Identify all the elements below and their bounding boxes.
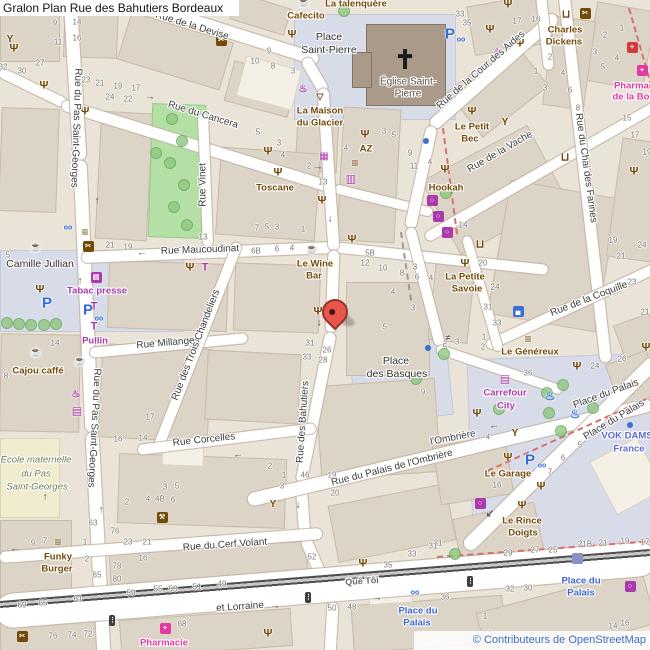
oneway-arrow-icon: ↓ [317, 318, 322, 329]
house-number: 15 [623, 114, 632, 123]
house-number: 24 [638, 241, 647, 250]
house-number: 27 [531, 546, 540, 555]
house-number: 9 [53, 19, 57, 28]
house-number: 1 [301, 225, 305, 234]
restaurant-icon: Ψ [537, 482, 546, 493]
fountain-icon: ♨ [545, 390, 556, 402]
purple-label: Pullin [82, 336, 108, 347]
tblue-label: Palais [567, 588, 594, 599]
brown-label: Le Petit [455, 122, 489, 133]
brown-label: Charles [548, 25, 583, 36]
restaurant-icon: Ψ [186, 263, 195, 274]
restaurant-icon: Ψ [288, 30, 297, 41]
house-number: 21 [617, 252, 626, 261]
house-number: 19 [621, 537, 630, 546]
house-number: 17 [146, 413, 155, 422]
tree-icon [543, 407, 555, 419]
house-number: 6B [251, 247, 261, 256]
cafe-icon: ☕ [74, 357, 86, 367]
house-number: 32 [506, 585, 515, 594]
house-number: 1 [620, 24, 624, 33]
parking-icon: P [83, 303, 93, 318]
house-number: 50 [328, 604, 337, 613]
purple-label: Tabac presse [67, 286, 127, 297]
restaurant-icon: Ψ [642, 343, 650, 354]
house-number: 5 [383, 323, 387, 332]
map-title: Gralon Plan Rue des Bahutiers Bordeaux [0, 0, 239, 16]
house-number: 4 [344, 144, 348, 153]
restaurant-icon: Ψ [468, 107, 477, 118]
house-number: 33 [456, 10, 465, 19]
house-number: 65 [93, 571, 102, 580]
building-block [204, 350, 302, 425]
pink-label: de la Bourse [612, 92, 650, 103]
school-label: Saint-Georges [6, 482, 67, 493]
map-viewport[interactable]: Rue de la DeviseRue du CanceraRue VinetR… [0, 0, 650, 650]
street-name: Rue Vinet [198, 163, 209, 207]
church-label: Église Saint- [380, 77, 436, 88]
restaurant-icon: Ψ [264, 629, 273, 640]
house-number: 2 [603, 31, 607, 40]
restaurant-icon: Ψ [486, 25, 495, 36]
house-number: 8 [271, 62, 275, 71]
oneway-arrow-icon: ↓ [328, 214, 333, 225]
laundry-icon: ○ [475, 498, 486, 509]
house-number: 35 [384, 561, 393, 570]
house-number: 46 [301, 471, 310, 480]
house-number: 74 [68, 631, 77, 640]
house-number: 2 [85, 555, 89, 564]
dot-icon [423, 138, 429, 144]
bar-icon: Y [7, 35, 14, 45]
restaurant-icon: Ψ [473, 409, 482, 420]
purple-label: City [497, 401, 515, 412]
house-number: 11 [54, 38, 62, 47]
house-number: 22 [124, 95, 133, 104]
house-number: 2 [307, 162, 311, 171]
house-number: 2 [268, 462, 272, 471]
brown-label: Bar [306, 271, 322, 282]
house-number: 1 [83, 538, 87, 547]
restaurant-icon: Ψ [441, 165, 450, 176]
pink-label: Pharmacie [614, 81, 650, 92]
brown-label: Funky [44, 552, 72, 563]
house-number: 35 [463, 19, 472, 28]
house-number: 12 [361, 259, 370, 268]
brown-label: Bec [461, 134, 478, 145]
restaurant-icon: Ψ [504, 0, 513, 11]
oneway-arrow-icon: → [313, 162, 323, 173]
house-number: 24 [591, 362, 600, 371]
brown-label: La Maison [297, 106, 343, 117]
blue-label: France [613, 444, 644, 455]
brown-label: Burger [41, 564, 72, 575]
book-icon: ▥ [346, 175, 356, 186]
house-number: 3 [291, 67, 295, 76]
school-label: du Pas [21, 469, 51, 480]
house-number: 36 [441, 593, 450, 602]
tblue-label: Palais [403, 618, 430, 629]
house-number: 21 [106, 241, 115, 250]
school-label: École maternelle [1, 455, 72, 466]
brown-label: Le Garage [485, 469, 531, 480]
house-number: 10 [251, 57, 260, 66]
beer-icon: ⊔ [561, 153, 570, 164]
burger-icon: ≡ [524, 333, 531, 345]
house-number: 16 [532, 15, 541, 24]
oneway-arrow-icon: → [372, 593, 382, 604]
restaurant-icon: Ψ [10, 44, 19, 55]
burger-icon: ≡ [81, 226, 88, 238]
oneway-arrow-icon: → [145, 92, 155, 103]
house-number: 6 [275, 245, 279, 254]
map-canvas: Rue de la DeviseRue du CanceraRue VinetR… [0, 0, 650, 650]
tree-icon [176, 135, 188, 147]
house-number: 4 [428, 158, 432, 167]
house-number: 5 [578, 441, 582, 450]
oneway-arrow-icon: → [270, 601, 280, 612]
house-number: 19 [114, 82, 123, 91]
house-number: 1 [483, 612, 487, 621]
house-number: 5 [601, 63, 605, 72]
house-number: 3 [593, 48, 597, 57]
house-number: 16 [114, 435, 123, 444]
bike-icon: oo [538, 463, 547, 470]
house-number: 3 [411, 304, 415, 313]
tree-icon [1, 317, 13, 329]
house-number: 76 [111, 527, 120, 536]
house-number: 9 [31, 539, 35, 548]
house-number: 20 [479, 259, 488, 268]
tree-icon [168, 201, 180, 213]
house-number: 13 [319, 178, 328, 187]
restaurant-icon: Ψ [40, 81, 49, 92]
parking-icon: P [445, 27, 455, 42]
tshirt-icon: T [202, 263, 209, 274]
house-number: 4 [486, 433, 490, 442]
tblue-label: Place du [561, 576, 600, 587]
tree-icon [449, 548, 461, 560]
house-number: 1 [482, 333, 486, 342]
light-icon: ⋮ [305, 592, 311, 603]
house-number: 4B [155, 495, 165, 504]
cafe-icon: ☕ [30, 348, 42, 358]
house-number: 21 [143, 538, 152, 547]
house-number: 24 [491, 283, 500, 292]
house-number: 72 [84, 630, 93, 639]
house-number: 65 [39, 599, 48, 608]
restaurant-icon: Ψ [518, 501, 527, 512]
brown-label: Le Rince [502, 516, 542, 527]
house-number: 5 [265, 223, 269, 232]
marker-center-dot [328, 308, 336, 316]
oneway-arrow-icon: ← [489, 421, 499, 432]
house-number: 3 [280, 482, 284, 491]
laundry-icon: ○ [427, 195, 438, 206]
house-number: 19 [124, 243, 133, 252]
oneway-arrow-icon: ↓ [296, 500, 301, 511]
church-label: Pierre [395, 89, 422, 100]
attribution: © Contributeurs de OpenStreetMap [414, 631, 650, 650]
house-number: 16 [621, 619, 630, 628]
tabac-icon: ▤ [91, 272, 102, 283]
tree-icon [150, 147, 162, 159]
house-number: 17 [641, 538, 650, 547]
bakery-icon: ♨ [299, 85, 308, 95]
house-number: 2 [548, 53, 552, 62]
house-number: 8 [576, 104, 580, 113]
bar-icon: Y [512, 429, 519, 439]
bike-icon: oo [457, 37, 466, 44]
oneway-arrow-icon: ↑ [99, 505, 104, 516]
house-number: 23 [124, 538, 133, 547]
keyboard-icon: ▦ [319, 152, 328, 162]
oneway-arrow-icon: ← [10, 544, 20, 555]
house-number: 23 [628, 278, 637, 287]
tree-icon [13, 318, 25, 330]
house-number: 4 [281, 151, 285, 160]
place-label: Place [383, 355, 409, 367]
place-label: Place [316, 31, 342, 43]
house-number: 8 [4, 372, 8, 381]
house-number: 16 [493, 481, 502, 490]
house-number: 14 [73, 18, 82, 27]
house-number: 11 [410, 162, 418, 171]
cafe-icon: ☕ [306, 245, 318, 255]
tblue-label: Place du [398, 606, 437, 617]
house-number: 3 [382, 127, 386, 136]
parking-icon: P [525, 453, 535, 468]
house-number: 31 [484, 303, 493, 312]
restaurant-icon: Ψ [630, 167, 639, 178]
house-number: 1 [282, 471, 286, 480]
hairdresser-icon: ✂ [83, 241, 94, 252]
house-number: 10 [379, 264, 388, 273]
tram-icon [572, 553, 583, 564]
restaurant-icon: Ψ [348, 235, 357, 246]
bar-icon: Y [502, 118, 509, 128]
house-number: 4 [146, 495, 150, 504]
oneway-arrow-icon: ← [137, 248, 147, 259]
house-number: 6 [171, 496, 175, 505]
basket-icon: ▤ [500, 375, 510, 386]
light-icon: ⋮ [467, 576, 473, 587]
house-number: 25 [549, 546, 558, 555]
house-number: 17 [513, 17, 522, 26]
house-number: 28 [319, 356, 328, 365]
pharmacy-icon: + [160, 623, 171, 634]
house-number: 36 [524, 369, 533, 378]
light-icon: ⋮ [109, 615, 115, 626]
building-block [328, 483, 457, 563]
house-number: 2 [125, 498, 129, 507]
house-number: 3 [277, 139, 281, 148]
house-number: 3 [543, 84, 547, 93]
place-label: Camille Jullian [6, 258, 74, 270]
icecream-icon: ▽ [317, 93, 324, 102]
house-number: 7 [255, 224, 259, 233]
house-number: 29 [504, 549, 513, 558]
church-block [352, 52, 372, 88]
tree-icon [164, 157, 176, 169]
tree-icon [166, 113, 178, 125]
brown-label: du Glacier [297, 118, 343, 129]
house-number: 30 [524, 584, 533, 593]
neq-icon: ≠ [446, 334, 451, 343]
house-number: 16 [139, 554, 148, 563]
brown-label: Savoie [452, 284, 483, 295]
brown-label: Cajou caffé [12, 366, 63, 377]
brown-label: La talenquère [325, 0, 387, 10]
house-number: 30 [18, 67, 27, 76]
cafe-icon: ☕ [30, 243, 42, 253]
house-number: 63 [89, 519, 98, 528]
place-label: Saint-Pierre [301, 44, 356, 56]
house-number: 4 [429, 274, 433, 283]
house-number: 17 [631, 131, 640, 140]
beer-icon: ⊔ [562, 10, 571, 21]
house-number: 61 [74, 595, 83, 604]
house-number: 27 [36, 59, 45, 68]
house-number: 20 [331, 489, 340, 498]
restaurant-icon: Ψ [359, 559, 368, 570]
house-number: 17 [132, 84, 141, 93]
house-number: 21 [96, 79, 105, 88]
hairdresser-icon: ✂ [580, 8, 591, 19]
house-number: 1 [534, 67, 538, 76]
works-icon: ⚒ [157, 512, 168, 523]
beer-icon: ⊔ [476, 240, 485, 251]
house-number: 3 [163, 483, 167, 492]
tree-icon [181, 219, 193, 231]
parking-icon: P [42, 296, 52, 311]
house-number: 53 [169, 585, 178, 594]
house-number: 69 [18, 601, 27, 610]
house-number: 31 [306, 339, 315, 348]
house-number: 14 [609, 622, 618, 631]
restaurant-icon: Ψ [504, 453, 513, 464]
house-number: 21B [578, 540, 592, 549]
house-number: 21 [641, 308, 650, 317]
house-number: 6 [415, 273, 419, 282]
dot-icon [425, 345, 431, 351]
oneway-arrow-icon: ↑ [95, 196, 100, 207]
house-number: 7 [43, 537, 47, 546]
brown-label: Le Généreux [501, 347, 559, 358]
tree-icon [50, 318, 62, 330]
house-number: 59 [127, 589, 136, 598]
basket-icon: ▤ [72, 407, 82, 418]
house-number: 5 [175, 482, 179, 491]
restaurant-icon: Ψ [361, 130, 370, 141]
house-number: 3 [275, 223, 279, 232]
oneway-arrow-icon: ↙ [486, 509, 494, 520]
house-number: 2 [481, 343, 485, 352]
bar-icon: Y [270, 500, 277, 510]
house-number: 49 [218, 580, 227, 589]
bed-icon: ▄ [513, 306, 524, 317]
house-number: 26 [618, 355, 627, 364]
hairdresser-icon: ✂ [17, 631, 28, 642]
tree-icon [38, 319, 50, 331]
restaurant-icon: Ψ [264, 147, 273, 158]
house-number: 21 [599, 539, 608, 548]
burger-icon: ≡ [54, 536, 61, 548]
dot-icon [627, 422, 633, 428]
house-number: 14 [139, 434, 148, 443]
brown-label: Doigts [508, 528, 538, 539]
house-number: 19 [609, 236, 618, 245]
house-number: 26 [323, 346, 332, 355]
brown-label: Cafecito [287, 11, 324, 22]
pink-label: Pharmacie [140, 638, 188, 649]
tree-icon [555, 425, 567, 437]
tree-icon [438, 348, 450, 360]
house-number: 32 [0, 63, 7, 72]
laundry-icon: ○ [625, 581, 636, 592]
house-number: 80 [113, 575, 122, 584]
bike-icon: oo [95, 316, 104, 323]
house-number: 48 [348, 603, 357, 612]
purple-label: Carrefour [483, 388, 526, 399]
brown-label: Toscane [256, 183, 294, 194]
tree-icon [178, 179, 190, 191]
house-number: 5 [256, 128, 260, 137]
tshirt-icon: T [91, 322, 98, 333]
house-number: 6 [568, 86, 572, 95]
oneway-arrow-icon: ← [233, 450, 243, 461]
laundry-icon: ○ [442, 227, 453, 238]
house-number: 78 [113, 562, 122, 571]
house-number: 31 [429, 542, 438, 551]
building-block [0, 107, 60, 213]
house-number: 3 [413, 263, 417, 272]
restaurant-icon: Ψ [573, 362, 582, 373]
oneway-arrow-icon: ↑ [43, 492, 48, 503]
bakery-icon: ♨ [72, 390, 81, 400]
house-number: 24 [106, 93, 115, 102]
brown-label: Hookah [429, 183, 464, 194]
house-number: 52 [308, 553, 317, 562]
house-number: 51 [193, 583, 202, 592]
house-number: 4 [615, 54, 619, 63]
house-number: 55 [154, 585, 163, 594]
house-number: 6 [561, 454, 565, 463]
house-number: 33 [408, 550, 417, 559]
house-number: 33 [493, 319, 502, 328]
house-number: 13 [199, 233, 208, 242]
laundry-icon: ○ [433, 211, 444, 222]
house-number: 9 [267, 47, 271, 56]
bike-icon: oo [411, 590, 420, 597]
house-number: 14 [459, 221, 468, 230]
pharmacyred-icon: + [627, 42, 638, 53]
brown-label: La Petite [445, 272, 485, 283]
burger-icon: ≡ [351, 157, 358, 169]
restaurant-icon: Ψ [461, 259, 470, 270]
house-number: 19 [643, 148, 650, 157]
house-number: 5 [392, 131, 396, 140]
bike-icon: oo [64, 225, 73, 232]
cafe-icon: ☕ [298, 0, 310, 8]
house-number: 8 [400, 269, 404, 278]
street [0, 68, 68, 109]
house-number: 9 [421, 388, 425, 397]
house-number: 4 [561, 69, 565, 78]
house-number: 5B [365, 249, 375, 258]
pharmacy-icon: + [637, 65, 648, 76]
restaurant-icon: Ψ [318, 196, 327, 207]
